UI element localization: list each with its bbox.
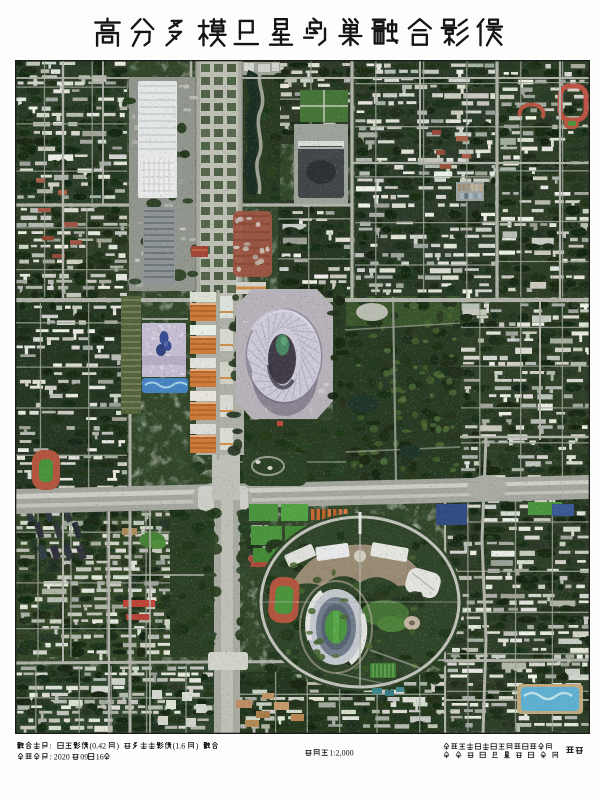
svg-text:1:2,000: 1:2,000 (329, 748, 353, 757)
svg-text:: 2020: : 2020 (50, 752, 70, 761)
svg-text:): ) (196, 741, 199, 750)
svg-text:16: 16 (96, 752, 104, 761)
svg-text:(0.42: (0.42 (90, 741, 107, 750)
svg-text:09: 09 (80, 752, 88, 761)
svg-text:(1.6: (1.6 (173, 741, 186, 750)
svg-text::: : (50, 741, 52, 750)
svg-text:): ) (116, 741, 119, 750)
